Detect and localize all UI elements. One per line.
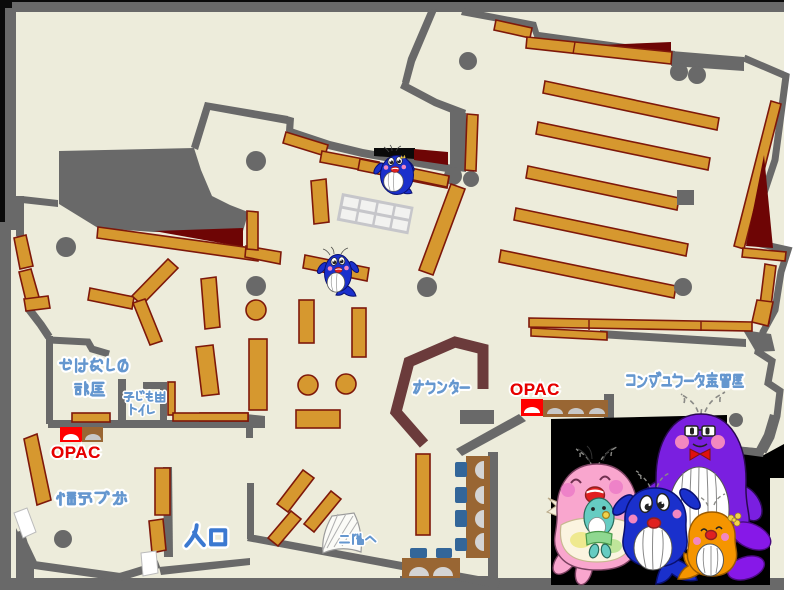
svg-text:OPAC: OPAC <box>510 380 560 399</box>
svg-text:OPAC: OPAC <box>51 443 101 462</box>
